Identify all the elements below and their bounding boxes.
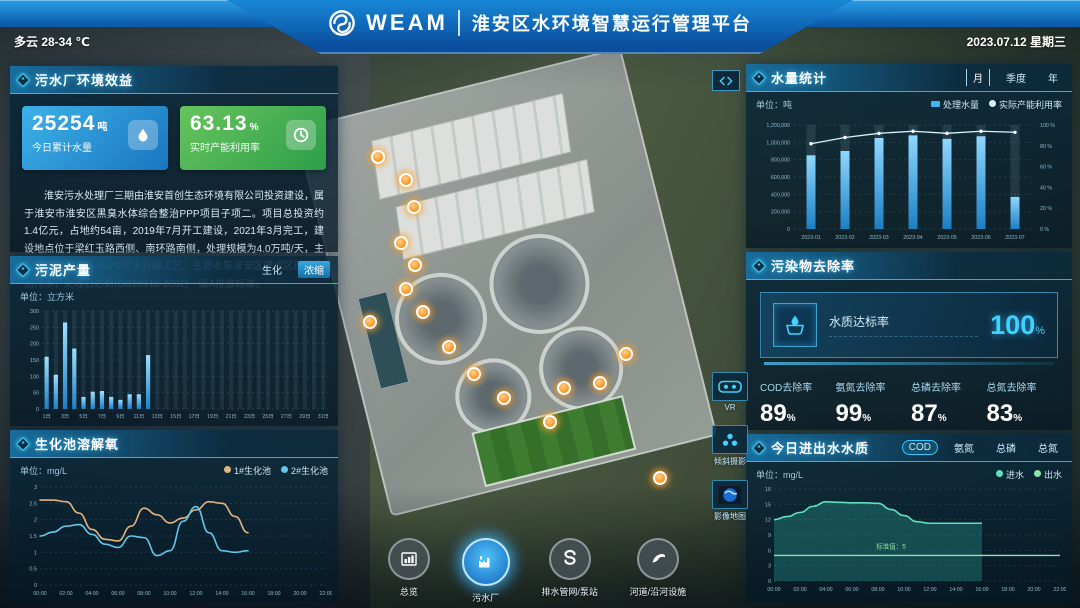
panel-icon <box>16 72 30 86</box>
map-marker[interactable] <box>394 236 408 250</box>
svg-text:27日: 27日 <box>281 413 292 420</box>
svg-text:19日: 19日 <box>207 413 218 420</box>
map-marker[interactable] <box>619 347 633 361</box>
map-marker[interactable] <box>543 415 557 429</box>
nav-item-sewage-plant[interactable]: 污水厂 <box>462 538 510 604</box>
svg-text:2023-07: 2023-07 <box>1005 235 1024 241</box>
stat-value: 25254 <box>32 112 95 135</box>
map-marker[interactable] <box>557 381 571 395</box>
svg-text:1.5: 1.5 <box>29 534 37 540</box>
svg-text:1,000,000: 1,000,000 <box>766 140 790 146</box>
panel-title: 水量统计 <box>771 68 959 87</box>
svg-text:1日: 1日 <box>42 413 50 420</box>
stat-unit: % <box>250 122 259 133</box>
svg-text:22:00: 22:00 <box>319 591 332 597</box>
svg-text:60 %: 60 % <box>1040 165 1052 171</box>
svg-text:0: 0 <box>787 227 790 233</box>
svg-text:21日: 21日 <box>226 413 237 420</box>
svg-text:300: 300 <box>30 309 39 315</box>
svg-text:04:00: 04:00 <box>85 591 98 597</box>
svg-text:200,000: 200,000 <box>771 210 790 216</box>
panel-title: 污水厂环境效益 <box>35 70 330 89</box>
svg-text:50: 50 <box>33 391 39 397</box>
svg-text:12:00: 12:00 <box>923 587 936 593</box>
map-marker[interactable] <box>416 305 430 319</box>
stat-value: 87% <box>911 400 983 428</box>
svg-text:标准值：5: 标准值：5 <box>876 541 906 550</box>
quality-tabs: COD氨氮总磷总氮 <box>902 439 1064 456</box>
weather-status: 多云 28-34 ℃ <box>14 33 90 50</box>
svg-text:12:00: 12:00 <box>189 591 202 597</box>
tool-label: 影像地图 <box>714 511 746 522</box>
stat-unit: 吨 <box>97 122 107 133</box>
map-marker[interactable] <box>371 150 385 164</box>
svg-text:200: 200 <box>30 342 39 348</box>
svg-text:14:00: 14:00 <box>949 587 962 593</box>
volume-legend: 处理水量 实际产能利用率 <box>931 98 1062 111</box>
basin-droplet-icon <box>773 303 817 347</box>
tool-button-oblique-photo[interactable]: 倾斜摄影 <box>710 425 750 467</box>
svg-text:0 %: 0 % <box>1040 227 1049 233</box>
collapse-right-panel-button[interactable] <box>712 70 740 91</box>
removal-stats: COD去除率89%氨氮去除率99%总磷去除率87%总氮去除率83% <box>752 365 1066 428</box>
map-marker[interactable] <box>467 367 481 381</box>
svg-text:08:00: 08:00 <box>137 591 150 597</box>
quality-legend: 进水 出水 <box>996 468 1062 481</box>
tab-0[interactable]: COD <box>902 440 938 455</box>
svg-text:250: 250 <box>30 325 39 331</box>
svg-text:20:00: 20:00 <box>1027 587 1040 593</box>
tab-1[interactable]: 氨氮 <box>948 439 980 456</box>
oxygen-line-chart: 00.511.522.5300:0002:0004:0006:0008:0010… <box>16 477 332 603</box>
sludge-panel-header: 污泥产量 生化浓缩 <box>10 256 338 284</box>
svg-text:600,000: 600,000 <box>771 175 790 181</box>
map-marker[interactable] <box>442 340 456 354</box>
removal-stat-1: 氨氮去除率99% <box>836 379 908 428</box>
svg-text:40 %: 40 % <box>1040 185 1052 191</box>
svg-text:80 %: 80 % <box>1040 144 1052 150</box>
river-facility-icon <box>637 538 679 580</box>
svg-text:2023-06: 2023-06 <box>971 235 990 241</box>
nav-item-pipe-network[interactable]: 排水管网/泵站 <box>541 538 598 604</box>
map-tool-buttons: VR倾斜摄影影像地图 <box>710 372 750 522</box>
tab-1[interactable]: 季度 <box>1000 69 1032 86</box>
tool-button-vr-goggles[interactable]: VR <box>710 372 750 412</box>
stat-label: COD去除率 <box>760 379 832 394</box>
stat-value: 89% <box>760 400 832 428</box>
panel-title: 生化池溶解氧 <box>35 434 330 453</box>
tab-1[interactable]: 浓缩 <box>298 261 330 278</box>
sewage-plant-icon <box>462 538 510 586</box>
svg-text:100 %: 100 % <box>1040 123 1055 129</box>
removal-panel-header: 污染物去除率 <box>746 252 1072 280</box>
top-header: WEAM 淮安区水环境智慧运行管理平台 多云 28-34 ℃ 2023.07.1… <box>0 0 1080 56</box>
quality-panel-header: 今日进出水水质 COD氨氮总磷总氮 <box>746 434 1072 462</box>
unit-label: 单位：立方米 <box>20 290 74 303</box>
svg-text:16:00: 16:00 <box>241 591 254 597</box>
svg-text:04:00: 04:00 <box>819 587 832 593</box>
svg-text:02:00: 02:00 <box>793 587 806 593</box>
stat-label: 氨氮去除率 <box>836 379 908 394</box>
map-marker[interactable] <box>653 471 667 485</box>
map-marker[interactable] <box>408 258 422 272</box>
svg-text:20 %: 20 % <box>1040 206 1052 212</box>
unit-label: 单位：mg/L <box>756 468 803 481</box>
svg-text:5日: 5日 <box>79 413 87 420</box>
oblique-photo-icon <box>712 425 748 454</box>
unit-label: 单位：吨 <box>756 98 792 111</box>
nav-item-overview[interactable]: 总览 <box>388 538 430 604</box>
sludge-bar-chart: 0501001502002503001日3日5日7日9日11日13日15日17日… <box>16 303 332 427</box>
svg-text:25日: 25日 <box>262 413 273 420</box>
tab-2[interactable]: 年 <box>1042 69 1064 86</box>
panel-icon <box>16 262 30 276</box>
svg-text:18:00: 18:00 <box>1001 587 1014 593</box>
quality-panel: 今日进出水水质 COD氨氮总磷总氮 单位：mg/L 进水 出水 03691215… <box>746 434 1072 602</box>
panel-title: 今日进出水水质 <box>771 438 895 457</box>
svg-text:31日: 31日 <box>318 413 329 420</box>
svg-text:0: 0 <box>34 583 37 589</box>
map-marker[interactable] <box>363 315 377 329</box>
removal-panel: 污染物去除率 水质达标率 100% COD去除率89%氨氮去除率99%总磷去除率… <box>746 252 1072 430</box>
sludge-tabs: 生化浓缩 <box>256 261 330 278</box>
svg-text:10:00: 10:00 <box>163 591 176 597</box>
stat-label: 总磷去除率 <box>911 379 983 394</box>
svg-text:16:00: 16:00 <box>975 587 988 593</box>
panel-icon <box>752 440 766 454</box>
capacity-utilization-card[interactable]: 63.13% 实时产能利用率 <box>180 106 326 170</box>
svg-text:08:00: 08:00 <box>871 587 884 593</box>
svg-text:2023-03: 2023-03 <box>869 235 888 241</box>
svg-text:15日: 15日 <box>170 413 181 420</box>
svg-text:2023-02: 2023-02 <box>835 235 854 241</box>
stat-value: 99% <box>836 400 908 428</box>
imagery-map-icon <box>712 480 748 509</box>
stat-label: 总氮去除率 <box>987 379 1059 394</box>
panel-icon <box>752 70 766 84</box>
vr-goggles-icon <box>712 372 748 401</box>
pipe-network-icon <box>549 538 591 580</box>
svg-text:800,000: 800,000 <box>771 158 790 164</box>
water-quality-compliance-card[interactable]: 水质达标率 100% <box>760 292 1058 358</box>
stat-value: 83% <box>987 400 1059 428</box>
brand-name: WEAM <box>366 10 448 36</box>
svg-text:400,000: 400,000 <box>771 192 790 198</box>
stat-value: 63.13 <box>190 112 248 135</box>
map-marker[interactable] <box>497 391 511 405</box>
volume-tabs: 月季度年 <box>966 69 1064 86</box>
panel-icon <box>752 258 766 272</box>
volume-bar-line-chart: 0200,000400,000600,000800,0001,000,0001,… <box>752 111 1066 247</box>
volume-panel: 水量统计 月季度年 单位：吨 处理水量 实际产能利用率 0200,000400,… <box>746 64 1072 248</box>
map-marker[interactable] <box>399 173 413 187</box>
svg-text:18: 18 <box>765 487 771 493</box>
svg-text:3: 3 <box>34 485 37 491</box>
nav-label: 河道/沿河设施 <box>630 585 687 598</box>
svg-text:9日: 9日 <box>116 413 124 420</box>
tab-2[interactable]: 总磷 <box>990 439 1022 456</box>
gauge-icon <box>286 120 316 150</box>
panel-icon <box>16 436 30 450</box>
svg-text:10:00: 10:00 <box>897 587 910 593</box>
svg-text:3: 3 <box>768 564 771 570</box>
svg-text:0: 0 <box>36 407 39 413</box>
svg-text:2023-01: 2023-01 <box>801 235 820 241</box>
quality-area-chart: 036912151800:0002:0004:0006:0008:0010:00… <box>752 481 1066 599</box>
overview-icon <box>388 538 430 580</box>
svg-text:22:00: 22:00 <box>1053 587 1066 593</box>
tab-3[interactable]: 总氮 <box>1032 439 1064 456</box>
svg-text:1: 1 <box>34 550 37 556</box>
svg-text:150: 150 <box>30 358 39 364</box>
svg-text:20:00: 20:00 <box>293 591 306 597</box>
svg-text:2023-05: 2023-05 <box>937 235 956 241</box>
panel-title: 污染物去除率 <box>771 256 1064 275</box>
map-marker[interactable] <box>407 200 421 214</box>
benefit-panel: 污水厂环境效益 25254吨 今日累计水量 63.13% 实时产能利用率 淮安污… <box>10 66 338 252</box>
page-title: 淮安区水环境智慧运行管理平台 <box>458 10 752 36</box>
daily-volume-card[interactable]: 25254吨 今日累计水量 <box>22 106 168 170</box>
tab-0[interactable]: 生化 <box>256 261 288 278</box>
svg-text:17日: 17日 <box>189 413 200 420</box>
compliance-label: 水质达标率 <box>829 313 978 337</box>
nav-label: 污水厂 <box>472 591 499 604</box>
svg-text:0: 0 <box>768 579 771 585</box>
oxygen-panel-header: 生化池溶解氧 <box>10 430 338 458</box>
svg-text:23日: 23日 <box>244 413 255 420</box>
svg-text:06:00: 06:00 <box>111 591 124 597</box>
tab-0[interactable]: 月 <box>966 69 990 86</box>
unit-label: 单位：mg/L <box>20 464 67 477</box>
svg-text:14:00: 14:00 <box>215 591 228 597</box>
oxygen-legend: 1#生化池 2#生化池 <box>224 464 328 477</box>
svg-text:2023-04: 2023-04 <box>903 235 922 241</box>
svg-text:2.5: 2.5 <box>29 501 37 507</box>
panel-title: 污泥产量 <box>35 260 249 279</box>
oxygen-panel: 生化池溶解氧 单位：mg/L 1#生化池 2#生化池 00.511.522.53… <box>10 430 338 602</box>
svg-text:0.5: 0.5 <box>29 567 37 573</box>
svg-text:100: 100 <box>30 374 39 380</box>
svg-text:2: 2 <box>34 518 37 524</box>
svg-text:6: 6 <box>768 548 771 554</box>
nav-label: 总览 <box>400 585 418 598</box>
svg-text:18:00: 18:00 <box>267 591 280 597</box>
tool-button-imagery-map[interactable]: 影像地图 <box>710 480 750 522</box>
svg-text:9: 9 <box>768 533 771 539</box>
map-marker[interactable] <box>593 376 607 390</box>
bottom-nav: 总览污水厂排水管网/泵站河道/沿河设施 <box>372 538 702 604</box>
removal-stat-3: 总氮去除率83% <box>987 379 1059 428</box>
svg-text:7日: 7日 <box>98 413 106 420</box>
nav-label: 排水管网/泵站 <box>541 585 598 598</box>
date-display: 2023.07.12 星期三 <box>967 33 1066 50</box>
removal-stat-2: 总磷去除率87% <box>911 379 983 428</box>
tool-label: VR <box>724 403 735 412</box>
svg-text:02:00: 02:00 <box>59 591 72 597</box>
volume-panel-header: 水量统计 月季度年 <box>746 64 1072 92</box>
removal-stat-0: COD去除率89% <box>760 379 832 428</box>
svg-text:29日: 29日 <box>299 413 310 420</box>
svg-text:00:00: 00:00 <box>33 591 46 597</box>
tool-label: 倾斜摄影 <box>714 456 746 467</box>
svg-text:3日: 3日 <box>61 413 69 420</box>
svg-text:06:00: 06:00 <box>845 587 858 593</box>
nav-item-river-facility[interactable]: 河道/沿河设施 <box>630 538 687 604</box>
svg-text:00:00: 00:00 <box>767 587 780 593</box>
svg-text:11日: 11日 <box>133 413 144 420</box>
svg-text:15: 15 <box>765 502 771 508</box>
weam-logo-icon <box>328 9 356 37</box>
sludge-panel: 污泥产量 生化浓缩 单位：立方米 0501001502002503001日3日5… <box>10 256 338 426</box>
svg-text:13日: 13日 <box>152 413 163 420</box>
water-drop-icon <box>128 120 158 150</box>
svg-text:12: 12 <box>765 518 771 524</box>
benefit-panel-header: 污水厂环境效益 <box>10 66 338 94</box>
map-marker[interactable] <box>399 282 413 296</box>
compliance-value: 100 <box>990 310 1035 340</box>
chevrons-icon <box>718 76 734 86</box>
svg-text:1,200,000: 1,200,000 <box>766 123 790 129</box>
